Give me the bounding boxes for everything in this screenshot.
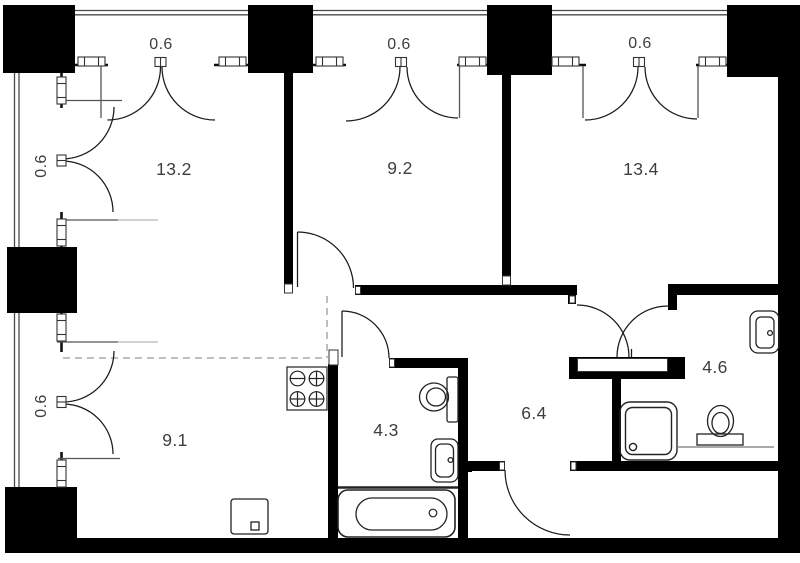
exterior-wall-right xyxy=(778,5,800,553)
sink-icon xyxy=(750,311,779,353)
door-pivot-icon xyxy=(155,58,166,67)
balcony-area-label: 0.6 xyxy=(628,35,651,52)
toilet-icon xyxy=(420,377,459,422)
wall-segment xyxy=(328,364,338,545)
balcony-door-arc xyxy=(407,67,458,118)
column xyxy=(3,5,75,73)
radiator-icon xyxy=(57,77,66,104)
room-area-label: 13.4 xyxy=(623,159,659,179)
wardrobe-inset xyxy=(578,359,668,372)
radiator-icon xyxy=(57,219,66,246)
door-pivot-icon xyxy=(57,155,66,166)
room-area-label: 6.4 xyxy=(521,403,547,423)
wall-segment xyxy=(668,284,778,295)
wall-segment xyxy=(355,285,577,295)
radiator-icon xyxy=(316,57,343,66)
door-swing-arc xyxy=(342,311,389,358)
balcony-area-label: 0.6 xyxy=(33,154,50,177)
door-swing-arc xyxy=(505,470,570,535)
balcony-door-arc xyxy=(346,67,400,121)
toilet-icon xyxy=(697,406,743,446)
room-area-label: 4.3 xyxy=(373,420,399,440)
room-labels: 13.2 9.2 13.4 9.1 4.3 6.4 4.6 xyxy=(156,158,728,450)
door-pivots xyxy=(57,58,645,408)
balcony-door-arc xyxy=(162,67,215,120)
wardrobe-door-arc xyxy=(617,306,668,357)
faint-lines xyxy=(118,220,158,342)
radiator-icon xyxy=(57,314,66,341)
balcony-area-label: 0.6 xyxy=(387,36,410,53)
balcony-door-arc xyxy=(585,67,638,120)
door-pivot-icon xyxy=(57,397,66,408)
room-area-label: 9.2 xyxy=(387,158,413,178)
room-area-label: 9.1 xyxy=(162,430,188,450)
exterior-wall-bottom xyxy=(7,538,800,553)
bathtub-icon xyxy=(338,488,458,538)
door-pivot-icon xyxy=(396,58,407,67)
radiator-icon xyxy=(459,57,486,66)
radiator-icon xyxy=(78,57,105,66)
shower-tray-icon xyxy=(620,402,677,460)
room-area-label: 13.2 xyxy=(156,159,192,179)
column xyxy=(7,247,77,313)
washing-machine-icon xyxy=(231,499,268,534)
door-swing-arc xyxy=(298,232,354,288)
balcony-labels: 0.6 0.6 0.6 0.6 0.6 xyxy=(33,35,652,418)
kitchen-zone-dashed-line xyxy=(63,296,327,358)
radiator-icon xyxy=(57,460,66,487)
column xyxy=(248,5,313,73)
balcony-door-arc xyxy=(62,107,114,159)
balcony-door-arc xyxy=(63,404,113,454)
room-area-label: 4.6 xyxy=(702,357,728,377)
balcony-door-arc xyxy=(645,67,697,119)
balcony-area-label: 0.6 xyxy=(149,36,172,53)
interior-walls xyxy=(284,73,778,545)
door-pivot-icon xyxy=(634,58,645,67)
wall-segment xyxy=(284,73,293,285)
radiator-icon xyxy=(552,57,579,66)
wall-segment xyxy=(389,358,468,368)
wall-segment xyxy=(502,75,511,285)
radiator-icon xyxy=(219,57,246,66)
radiator-icon xyxy=(699,57,726,66)
partition-thin-lines xyxy=(57,64,698,459)
wall-segment xyxy=(458,358,468,545)
floor-plan-canvas: 13.2 9.2 13.4 9.1 4.3 6.4 4.6 0.6 0.6 0.… xyxy=(0,0,800,563)
balcony-door-arc xyxy=(62,161,113,212)
sink-icon xyxy=(431,439,458,482)
wall-segment xyxy=(570,461,778,471)
column xyxy=(487,5,552,75)
floor-plan: 13.2 9.2 13.4 9.1 4.3 6.4 4.6 0.6 0.6 0.… xyxy=(0,0,800,563)
balcony-door-arc xyxy=(108,67,161,120)
stove-icon xyxy=(287,367,327,410)
wardrobe-door-arc xyxy=(577,305,629,357)
balcony-area-label: 0.6 xyxy=(33,394,50,417)
